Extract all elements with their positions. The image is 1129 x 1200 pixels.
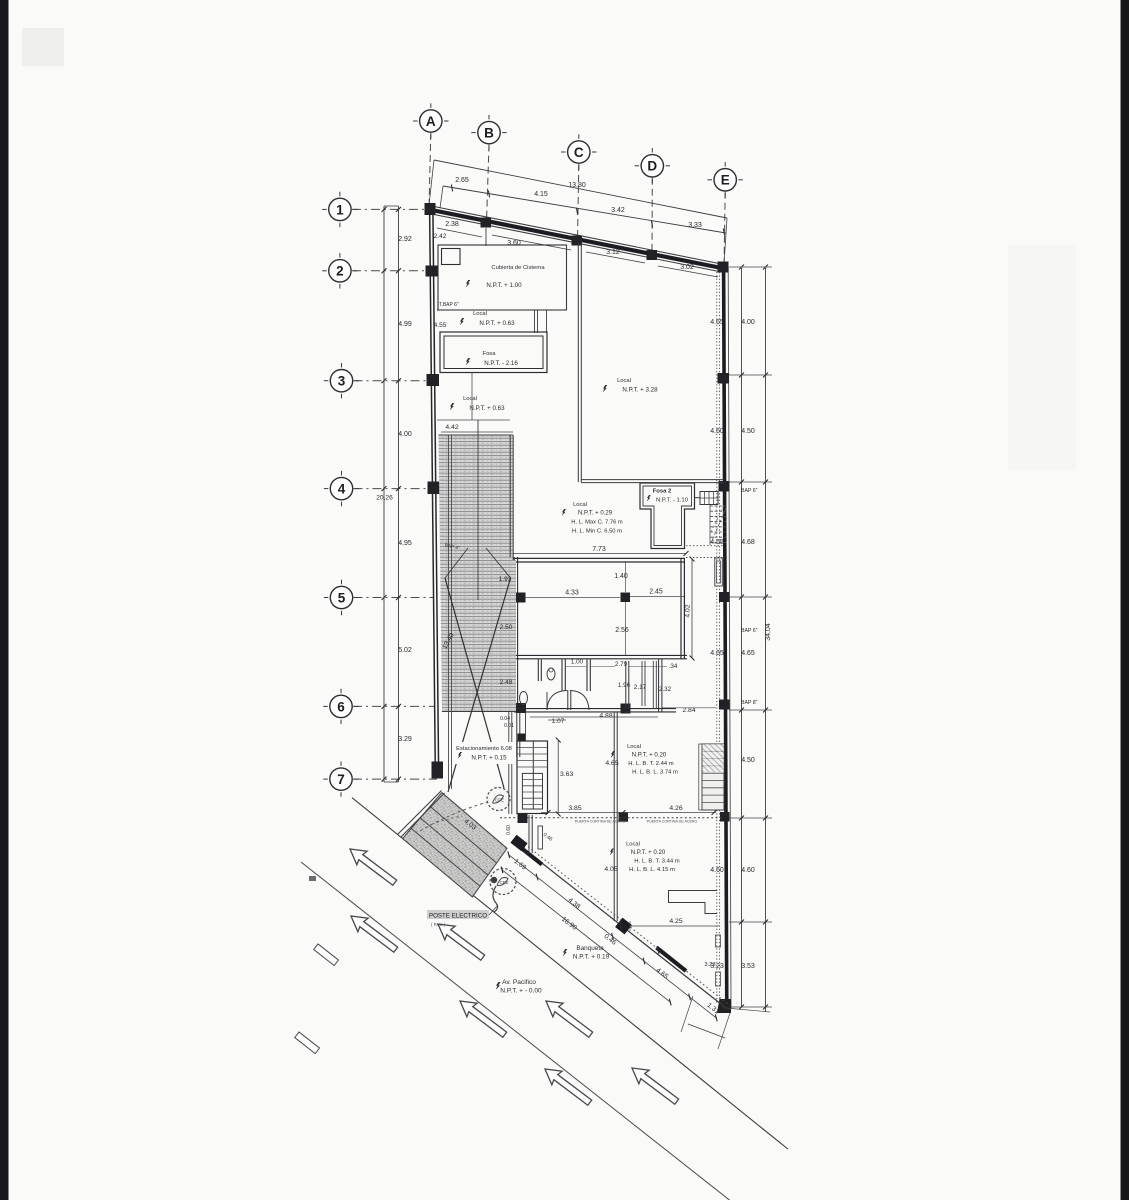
svg-text:4.65: 4.65 (741, 650, 755, 657)
svg-text:.34: .34 (669, 663, 678, 670)
svg-text:0.04: 0.04 (500, 716, 510, 722)
svg-text:H. L. B. T. 2.44 m: H. L. B. T. 2.44 m (628, 761, 673, 767)
svg-text:Local: Local (463, 396, 477, 402)
svg-text:2.48: 2.48 (500, 679, 513, 686)
svg-text:N.P.T. + 3.28: N.P.T. + 3.28 (622, 387, 658, 394)
svg-text:5: 5 (338, 590, 346, 605)
svg-text:4.25: 4.25 (669, 918, 682, 925)
svg-text:3.53: 3.53 (741, 963, 755, 970)
svg-text:N.P.T. + 0.63: N.P.T. + 0.63 (479, 320, 515, 327)
svg-text:N.P.T. + 0.20: N.P.T. + 0.20 (632, 752, 667, 759)
svg-text:N.P.T. + 0.63: N.P.T. + 0.63 (469, 405, 505, 412)
svg-text:4.88: 4.88 (599, 713, 612, 720)
svg-text:N.P.T. - 1.10: N.P.T. - 1.10 (656, 498, 689, 504)
svg-text:2: 2 (336, 264, 344, 279)
svg-text:5.02: 5.02 (398, 647, 412, 654)
svg-text:3.23: 3.23 (704, 962, 715, 968)
svg-text:2.65: 2.65 (455, 177, 469, 184)
svg-text:Cubierta de Cisterna: Cubierta de Cisterna (491, 265, 545, 271)
svg-text:C: C (574, 145, 584, 160)
svg-text:2.42: 2.42 (434, 233, 447, 240)
svg-text:4.95: 4.95 (398, 540, 412, 547)
svg-text:2.38: 2.38 (445, 221, 459, 228)
svg-text:4.55: 4.55 (434, 322, 447, 329)
svg-text:1.40: 1.40 (614, 573, 628, 580)
svg-text:BAP 6": BAP 6" (741, 488, 758, 494)
svg-text:3.29: 3.29 (398, 736, 412, 743)
svg-text:2.17: 2.17 (634, 684, 647, 691)
svg-text:-T.BAP 6": -T.BAP 6" (437, 302, 459, 308)
svg-text:4.68: 4.68 (741, 539, 755, 546)
svg-text:3.60: 3.60 (507, 240, 521, 247)
svg-text:H. L. Min C. 6.50 m: H. L. Min C. 6.50 m (572, 529, 622, 535)
svg-text:13.80: 13.80 (568, 182, 586, 189)
svg-text:3: 3 (338, 374, 346, 389)
svg-text:N.P.T. + 0.15: N.P.T. + 0.15 (471, 755, 507, 762)
svg-text:4.65: 4.65 (605, 760, 618, 767)
svg-text:3.42: 3.42 (611, 207, 625, 214)
svg-text:POSTE ELECTRICO: POSTE ELECTRICO (429, 913, 487, 920)
svg-text:CFE: CFE (500, 880, 509, 885)
svg-text:0.01: 0.01 (504, 723, 514, 729)
svg-text:4.00: 4.00 (741, 319, 755, 326)
svg-text:1.93: 1.93 (499, 576, 512, 583)
svg-text:N.P.T. + 0.19: N.P.T. + 0.19 (573, 954, 610, 961)
svg-text:BAP 8": BAP 8" (741, 700, 758, 706)
svg-text:0.60: 0.60 (506, 825, 512, 835)
svg-text:CFE: CFE (495, 798, 504, 803)
svg-text:N.P.T. + 0.20: N.P.T. + 0.20 (631, 849, 666, 856)
svg-text:N.P.T. + 0.29: N.P.T. + 0.29 (578, 511, 613, 517)
svg-text:Av. Pacifico: Av. Pacifico (502, 979, 536, 986)
svg-text:4.50: 4.50 (741, 757, 755, 764)
svg-text:2.45: 2.45 (649, 589, 663, 596)
svg-text:3.33: 3.33 (688, 222, 702, 229)
svg-text:E: E (721, 173, 730, 188)
svg-text:D: D (647, 159, 657, 174)
svg-text:4.60: 4.60 (741, 867, 755, 874)
svg-text:Estacionamiento 6.08: Estacionamiento 6.08 (456, 746, 512, 752)
svg-text:N.P.T. - 2.16: N.P.T. - 2.16 (484, 360, 518, 367)
svg-text:6: 6 (337, 699, 345, 714)
svg-text:4.02: 4.02 (685, 604, 692, 617)
svg-text:Local: Local (617, 378, 631, 384)
svg-text:Local: Local (627, 744, 641, 750)
svg-text:7: 7 (337, 772, 345, 787)
svg-text:1.00: 1.00 (571, 659, 584, 666)
svg-text:1: 1 (336, 202, 344, 217)
svg-text:PUERTA CORTINA DE ACERO: PUERTA CORTINA DE ACERO (647, 820, 698, 824)
svg-text:4.42: 4.42 (445, 424, 458, 431)
svg-text:Banqueta: Banqueta (576, 945, 604, 952)
svg-text:20,26: 20,26 (376, 495, 393, 502)
svg-text:2.32: 2.32 (659, 686, 672, 693)
svg-text:4: 4 (338, 481, 346, 496)
svg-text:A: A (426, 114, 436, 129)
svg-text:N.P.T. + 1.00: N.P.T. + 1.00 (486, 282, 522, 289)
svg-text:7.73: 7.73 (592, 546, 606, 553)
svg-text:2.50: 2.50 (500, 624, 513, 631)
svg-text:2.79: 2.79 (615, 661, 628, 668)
svg-text:B: B (484, 125, 494, 140)
svg-text:BAP 6": BAP 6" (741, 628, 758, 634)
svg-text:4.33: 4.33 (565, 590, 579, 597)
svg-text:Local: Local (626, 842, 640, 848)
svg-text:4.26: 4.26 (669, 805, 682, 812)
svg-text:2.92: 2.92 (398, 236, 412, 243)
svg-text:4.99: 4.99 (398, 321, 412, 328)
svg-text:Local: Local (473, 311, 487, 317)
svg-text:3.63: 3.63 (560, 771, 573, 778)
svg-text:H. L. B. L. 4.15 m: H. L. B. L. 4.15 m (629, 867, 675, 873)
svg-text:4.15: 4.15 (534, 191, 548, 198)
svg-text:1.07: 1.07 (552, 718, 565, 725)
svg-text:( Para ): ( Para ) (431, 922, 446, 927)
svg-text:Fosa 2: Fosa 2 (653, 489, 672, 495)
svg-text:4.50: 4.50 (741, 428, 755, 435)
svg-text:4.00: 4.00 (398, 431, 412, 438)
svg-text:Fosa: Fosa (483, 351, 497, 357)
svg-text:H. L. B. T. 3.44 m: H. L. B. T. 3.44 m (634, 859, 679, 865)
svg-text:PUERTA CORTINA DE ACERO: PUERTA CORTINA DE ACERO (575, 820, 626, 824)
svg-text:4.05: 4.05 (604, 866, 617, 873)
svg-text:H. L. B. L. 3.74 m: H. L. B. L. 3.74 m (632, 770, 678, 776)
svg-text:3.85: 3.85 (568, 805, 581, 812)
svg-text:1.96: 1.96 (618, 682, 631, 689)
svg-text:Local: Local (573, 502, 587, 508)
svg-text:N.P.T. + - 0.00: N.P.T. + - 0.00 (500, 988, 542, 995)
svg-text:34,04: 34,04 (765, 623, 772, 641)
svg-text:H. L. Max C. 7.76 m: H. L. Max C. 7.76 m (571, 520, 623, 526)
svg-text:2.56: 2.56 (615, 627, 629, 634)
